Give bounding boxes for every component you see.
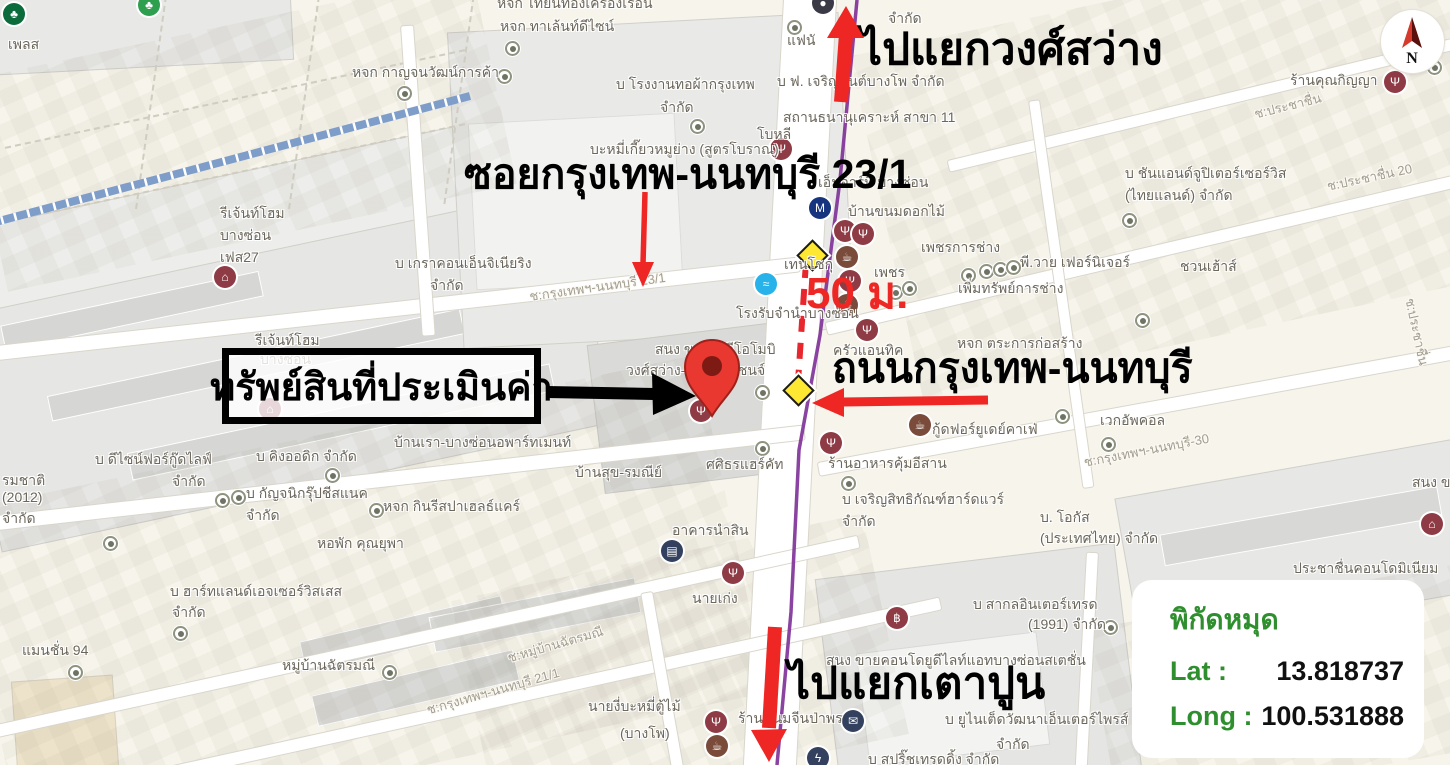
annotation-soi-23-1: ซอยกรุงเทพ-นนทบุรี 23/1 [464, 150, 911, 199]
map-poi-label: (ประเทศไทย) จำกัด [1040, 528, 1158, 550]
poi-dot-icon[interactable] [1101, 437, 1116, 452]
poi-dot-icon[interactable] [1135, 313, 1150, 328]
poi-dot-icon[interactable] [215, 493, 230, 508]
map-poi-label: บ สปริ๊ชเทรดดิ้ง จำกัด [868, 749, 999, 765]
map-poi-label: กู้ดฟอร์ยูเดย์คาเฟ่ [932, 419, 1038, 441]
map-poi-label: บ ชันแอนด์จูปิเตอร์เซอร์วิส [1125, 163, 1286, 185]
map-poi-label: หจก กินรีสปาเฮลธ์แคร์ [383, 496, 520, 518]
annotation-road-name: ถนนกรุงเทพ-นนทบุรี [832, 344, 1193, 393]
map-poi-label: สถานธนานุเคราะห์ สาขา 11 [783, 107, 955, 129]
cafe-icon[interactable]: ☕ [909, 414, 931, 436]
map-poi-label: (ไทยแลนด์) จำกัด [1125, 185, 1233, 207]
poi-dot-icon[interactable] [755, 385, 770, 400]
annotation-to-taopun: ไปแยกเตาปูน [788, 658, 1045, 711]
annotation-to-wongsawang: ไปแยกวงศ์สว่าง [860, 24, 1163, 77]
poi-dot-icon[interactable] [1122, 213, 1137, 228]
map-poi-label: บ เกราคอนเอ็นจิเนียริง [395, 253, 532, 275]
restaurant-icon[interactable]: Ψ [856, 319, 878, 341]
poi-dot-icon[interactable] [497, 69, 512, 84]
map-poi-label: หจก กาญจนวัฒน์การค้า [352, 62, 499, 84]
long-value: 100.531888 [1261, 701, 1404, 732]
map-canvas[interactable]: ช:กรุงเทพฯ-นนทบุรี 23/1ช:กรุงเทพฯ-นนทบุร… [0, 0, 1450, 765]
poi-dot-icon[interactable] [68, 665, 83, 680]
svg-text:N: N [1406, 50, 1418, 67]
poi-dot-icon[interactable] [369, 503, 384, 518]
map-poi-label: (2012) [2, 489, 42, 505]
poi-dot-icon[interactable] [103, 536, 118, 551]
map-poi-label: บ เจริญสิทธิกัณฑ์ฮาร์ดแวร์ [842, 489, 1004, 511]
hotel-icon[interactable]: ⌂ [214, 266, 236, 288]
swim-icon[interactable]: ≈ [755, 273, 777, 295]
map-poi-label: บ. โอกัส [1040, 507, 1090, 529]
restaurant-icon[interactable]: Ψ [852, 223, 874, 245]
map-poi-label: ร้านขนมจีนป่าพร [738, 708, 843, 730]
hotel-icon[interactable]: ⌂ [1421, 513, 1443, 535]
map-poi-label: หจก ไทยนทองเครื่องเรือน [497, 0, 653, 15]
poi-dot-icon[interactable] [1055, 409, 1070, 424]
restaurant-icon[interactable]: Ψ [1384, 71, 1406, 93]
cafe-icon[interactable]: ☕ [836, 246, 858, 268]
map-poi-label: บ้านเรา-บางซ่อนอพาร์ทเมนท์ [394, 432, 571, 454]
restaurant-icon[interactable]: Ψ [690, 400, 712, 422]
map-poi-label: (1991) จำกัด [1028, 614, 1106, 636]
map-poi-label: บ ยูไนเต็ดวัฒนาเอ็นเตอร์ไพรส์ [945, 709, 1128, 731]
cafe-icon[interactable]: ☕ [706, 735, 728, 757]
arrow-left-red [842, 400, 988, 402]
map-poi-label: หจก ทาเล้นท์ดีไซน์ [500, 16, 614, 38]
map-poi-label: พี.วาย เฟอร์นิเจอร์ [1020, 252, 1130, 274]
lat-label: Lat : [1170, 656, 1227, 687]
map-poi-label: จำกัด [172, 471, 206, 493]
map-poi-label: นายเก่ง [692, 588, 738, 610]
map-poi-label: ร้านคุณกิญญา [1290, 70, 1378, 92]
map-poi-label: บ โรงงานทอผ้ากรุงเทพ [616, 74, 755, 96]
poi-dot-icon[interactable] [690, 119, 705, 134]
map-poi-label: จำกัด [2, 508, 36, 530]
map-poi-label: เพชรการช่าง [921, 237, 1000, 259]
pin-coordinates-card: พิกัดหมุด Lat : 13.818737 Long : 100.531… [1132, 580, 1424, 758]
street-label: ช:กรุงเทพฯ-นนทบุรี-30 [1082, 428, 1211, 473]
bolt-icon[interactable]: ϟ [807, 747, 829, 765]
map-poi-label: วงศ์สว่าง-อินเตอร์เชนจ์ [626, 360, 765, 382]
map-poi-label: บ้านสุข-รมณีย์ [575, 462, 662, 484]
map-poi-label: (บางโพ) [620, 723, 670, 745]
map-poi-label: บางซ่อน [220, 225, 271, 247]
map-poi-label: แฟนั [787, 30, 816, 52]
map-poi-label: สนง ขา [1412, 472, 1450, 494]
annotation-distance-50m: 50 ม. [806, 268, 908, 321]
park2-icon[interactable]: ♣ [3, 3, 25, 25]
compass-north-icon[interactable]: N [1381, 10, 1444, 73]
restaurant-icon[interactable]: Ψ [722, 562, 744, 584]
restaurant-icon[interactable]: Ψ [820, 432, 842, 454]
poi-dot-icon[interactable] [979, 264, 994, 279]
map-poi-label: บ้านขนมดอกไม้ [848, 201, 945, 223]
map-poi-label: บ ดีไซน์ฟอร์กู๊ดไลฟ์ [95, 449, 212, 471]
map-poi-label: จำกัด [172, 602, 206, 624]
mrt-icon[interactable]: M [809, 197, 831, 219]
map-poi-label: บ ฮาร์ทแลนด์เอจเซอร์วิสเสส [170, 581, 342, 603]
property-callout-label: ทรัพย์สินที่ประเมินค่า [210, 356, 553, 417]
map-poi-label: สนง ขายไอดีโอโมบิ [655, 339, 776, 361]
map-poi-label: บ คิงออดิก จำกัด [256, 446, 357, 468]
map-poi-label: นายงี่บะหมี่ตู้ไม้ [588, 696, 681, 718]
map-poi-label: แมนชั่น 94 [22, 640, 88, 662]
map-poi-label: บ สากลอินเตอร์เทรด [973, 594, 1098, 616]
map-poi-label: หมู่บ้านฉัตรมณี [282, 655, 375, 677]
map-poi-label: ชวนเฮ้าส์ [1180, 256, 1237, 278]
pin-card-title: พิกัดหมุด [1170, 598, 1404, 642]
map-poi-label: จำกัด [660, 97, 694, 119]
poi-dot-icon[interactable] [231, 490, 246, 505]
poi-dot-icon[interactable] [325, 468, 340, 483]
poi-dot-icon[interactable] [382, 665, 397, 680]
map-poi-label: เพิ่มทรัพย์การช่าง [958, 278, 1063, 300]
map-poi-label: รีเจ้นท์โฮม [220, 203, 285, 225]
map-poi-label: จำกัด [430, 275, 464, 297]
poi-dot-icon[interactable] [173, 626, 188, 641]
map-poi-label: ประชาชื่นคอนโดมิเนียม [1293, 558, 1438, 580]
map-poi-label: เฟส27 [220, 247, 259, 269]
map-poi-label: ร้านอาหารคุ้มอีสาน [828, 453, 947, 475]
map-poi-label: จำกัด [246, 505, 280, 527]
building-icon[interactable]: ▤ [661, 540, 683, 562]
map-poi-label: เวกอัพคอล [1100, 410, 1165, 432]
map-poi-label: เพลส [8, 34, 39, 56]
map-poi-label: จำกัด [996, 734, 1030, 756]
map-poi-label: จำกัด [842, 511, 876, 533]
map-poi-label: หอพัก คุณยุพา [317, 533, 404, 555]
bank-icon[interactable]: ฿ [886, 607, 908, 629]
lat-value: 13.818737 [1276, 656, 1404, 687]
poi-dot-icon[interactable] [505, 41, 520, 56]
map-poi-label: ศศิธรแฮร์คัท [706, 454, 784, 476]
map-poi-label: บ กัญจนิกรุ๊ปชีสแนค [246, 483, 368, 505]
envelope-icon[interactable]: ✉ [842, 710, 864, 732]
property-callout-box: ทรัพย์สินที่ประเมินค่า [222, 348, 541, 424]
poi-dot-icon[interactable] [1006, 260, 1021, 275]
map-poi-label: อาคารนำสิน [672, 520, 749, 542]
long-label: Long : [1170, 701, 1252, 732]
poi-dot-icon[interactable] [397, 86, 412, 101]
restaurant-icon[interactable]: Ψ [705, 711, 727, 733]
